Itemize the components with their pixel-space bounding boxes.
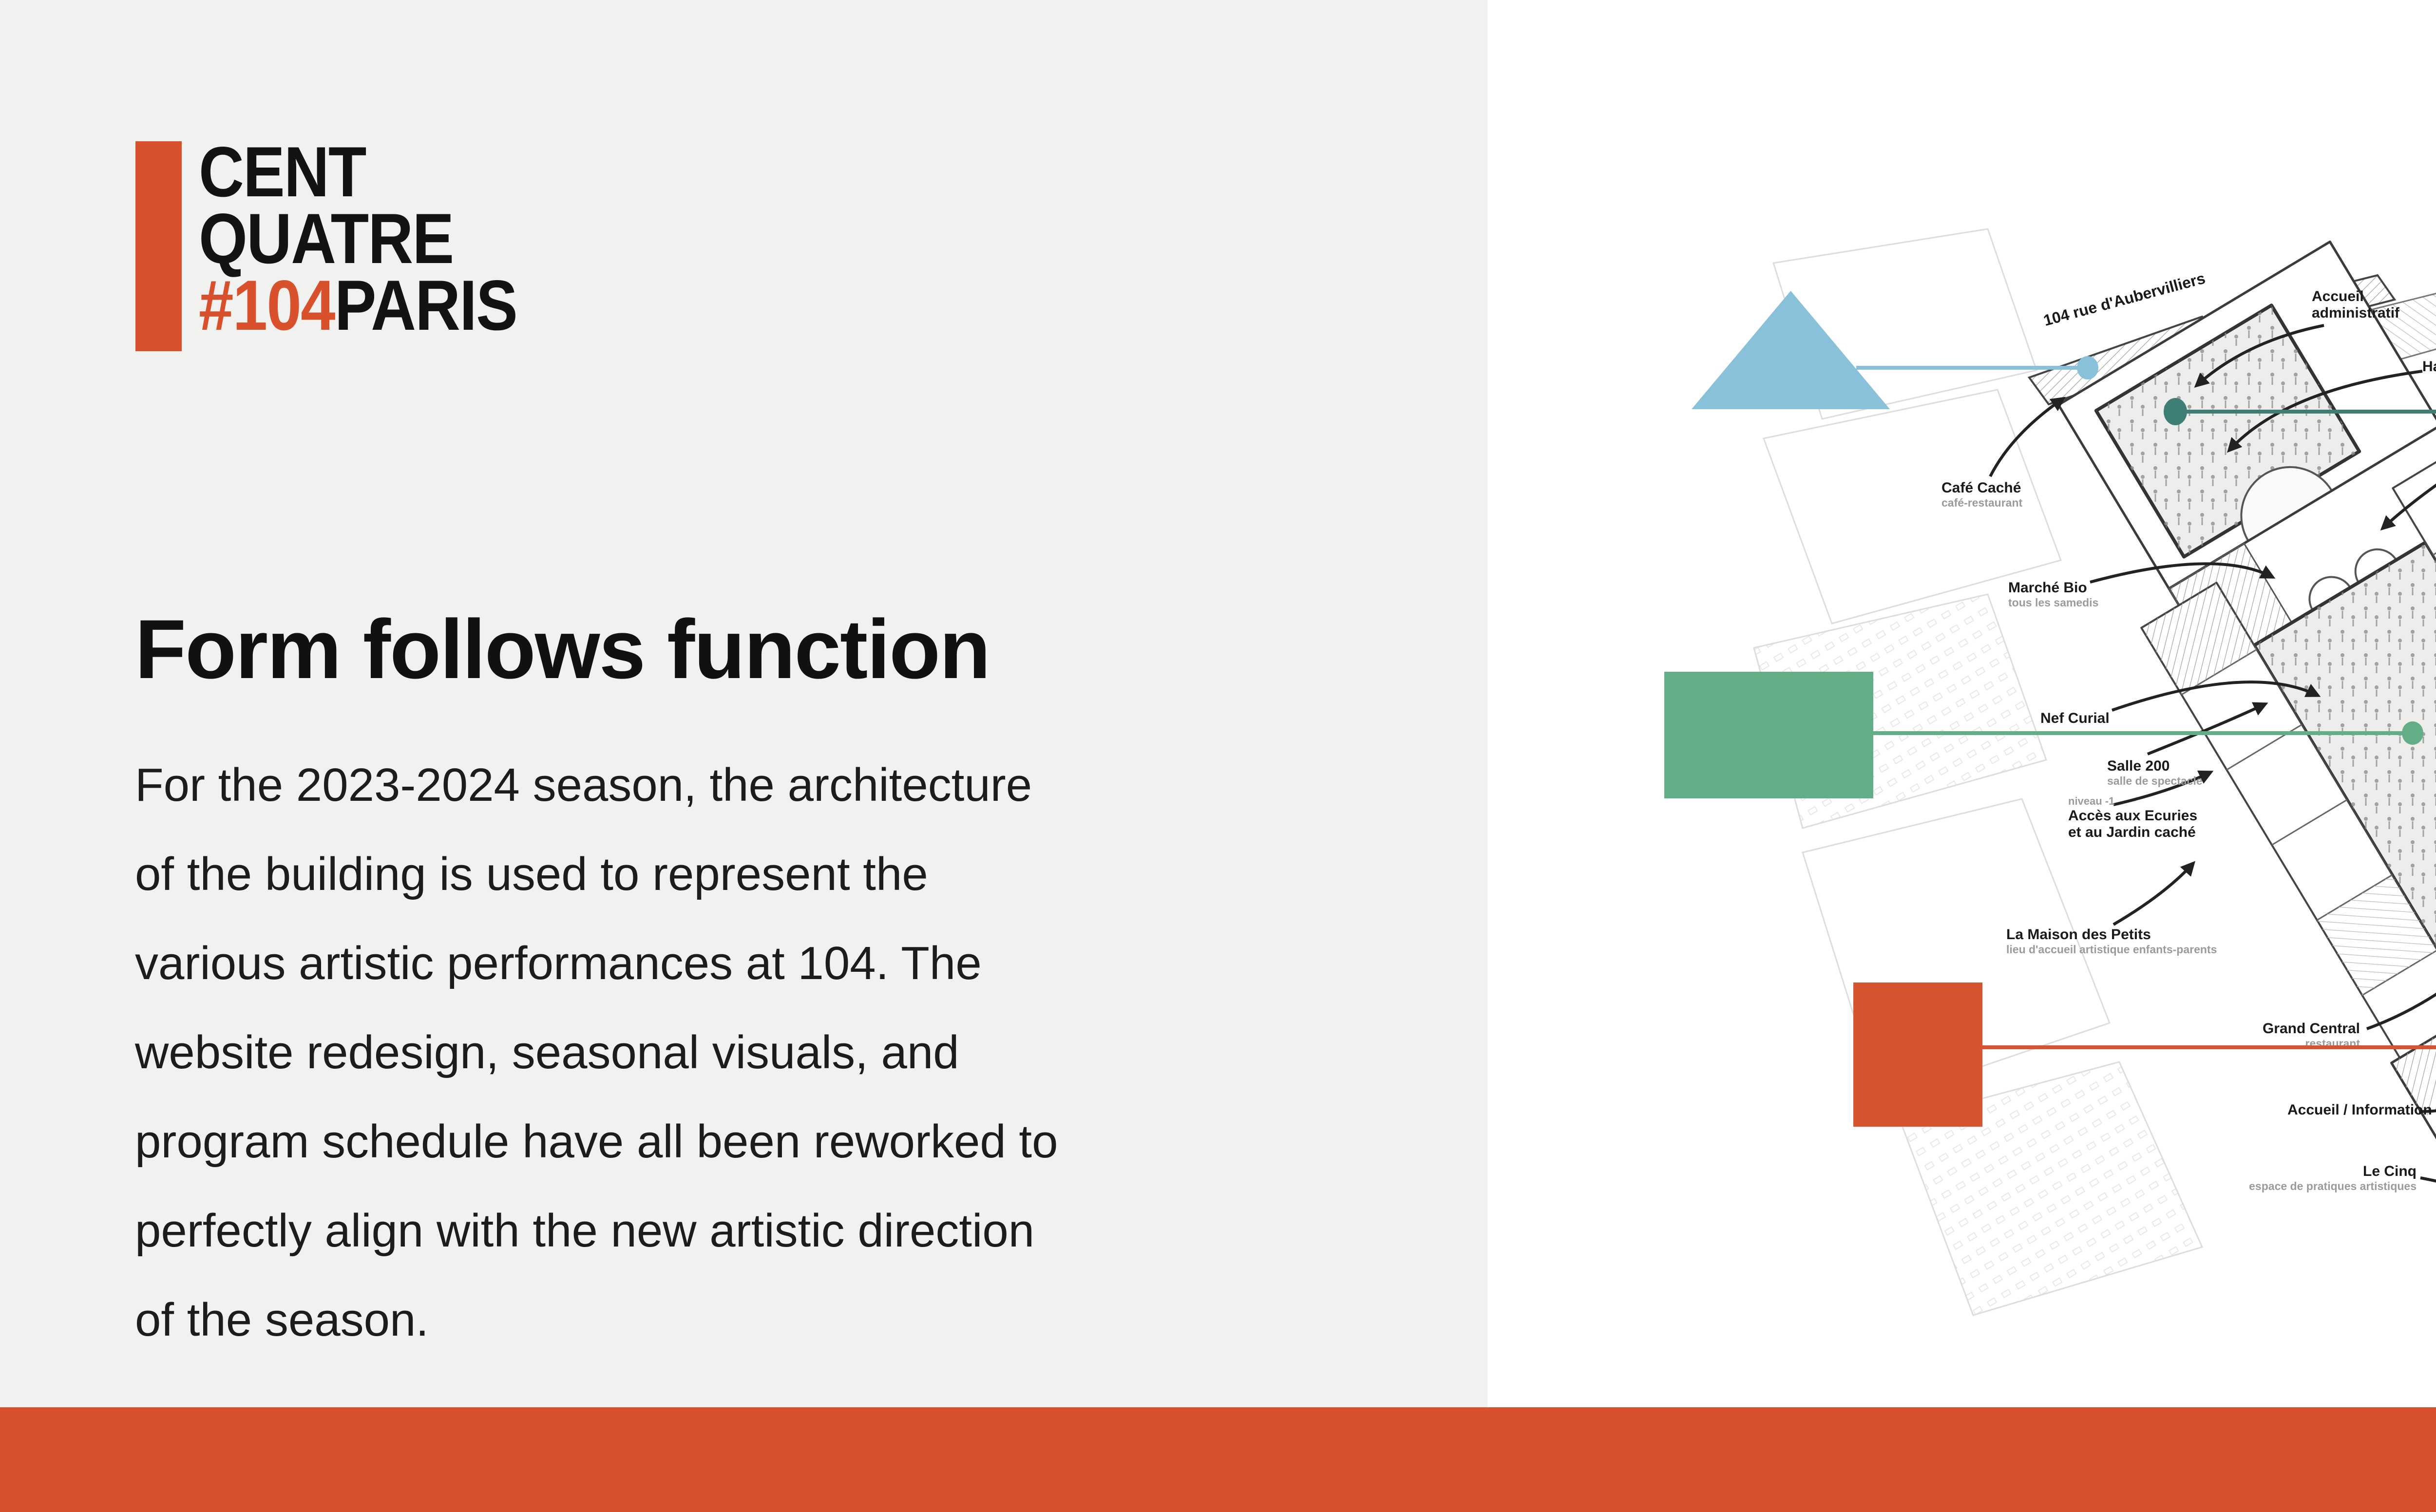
logo-text: CENT QUATRE #104PARIS xyxy=(199,138,517,339)
logo-hash-104: #104 xyxy=(199,265,335,345)
bottom-accent-bar xyxy=(0,1407,2436,1512)
callout-dot-lightblue xyxy=(2077,356,2098,379)
map-label-salle-200: Salle 200 salle de spectacle xyxy=(2107,758,2203,788)
logo-line-104paris: #104PARIS xyxy=(199,272,517,339)
green-rectangle-shape xyxy=(1664,672,1873,798)
description-paragraph: For the 2023-2024 season, the architectu… xyxy=(135,740,1421,1364)
left-panel: CENT QUATRE #104PARIS Form follows funct… xyxy=(0,0,1487,1407)
logo-line-quatre: QUATRE xyxy=(199,205,517,272)
orange-square-shape xyxy=(1853,983,1982,1127)
connector-line-green xyxy=(1872,731,2414,735)
map-label-marche-bio: Marché Bio tous les samedis xyxy=(2008,580,2098,609)
logo-orange-bar xyxy=(135,141,182,351)
callout-dot-teal xyxy=(2164,398,2187,425)
map-label-maison-des-petits: La Maison des Petits lieu d'accueil arti… xyxy=(2006,926,2235,956)
map-label-acces-ecuries: niveau -1 Accès aux Ecuries et au Jardin… xyxy=(2068,795,2197,841)
connector-line-orange xyxy=(1982,1045,2436,1049)
map-label-halle-aubervilliers: Halle Aubervilliers xyxy=(2422,359,2436,375)
logo-line-cent: CENT xyxy=(199,138,517,205)
page-title: Form follows function xyxy=(135,605,1402,693)
map-label-accueil-administratif: Accueil administratif xyxy=(2312,288,2399,321)
map-label-le-cinq: Le Cinq espace de pratiques artistiques xyxy=(2248,1163,2417,1193)
map-label-accueil-information: Accueil / Information xyxy=(2287,1102,2432,1118)
connector-line-lightblue xyxy=(1856,366,2089,370)
callout-dot-green xyxy=(2402,721,2423,745)
connector-line-teal xyxy=(2174,410,2436,414)
slide-canvas: 104 rue d'Aubervilliers 5 rue Curial Acc… xyxy=(0,0,2436,1512)
logo-paris: PARIS xyxy=(335,265,517,345)
map-label-cafe-cache: Café Caché café-restaurant xyxy=(1941,480,2022,510)
map-label-nef-curial: Nef Curial xyxy=(2040,710,2110,727)
